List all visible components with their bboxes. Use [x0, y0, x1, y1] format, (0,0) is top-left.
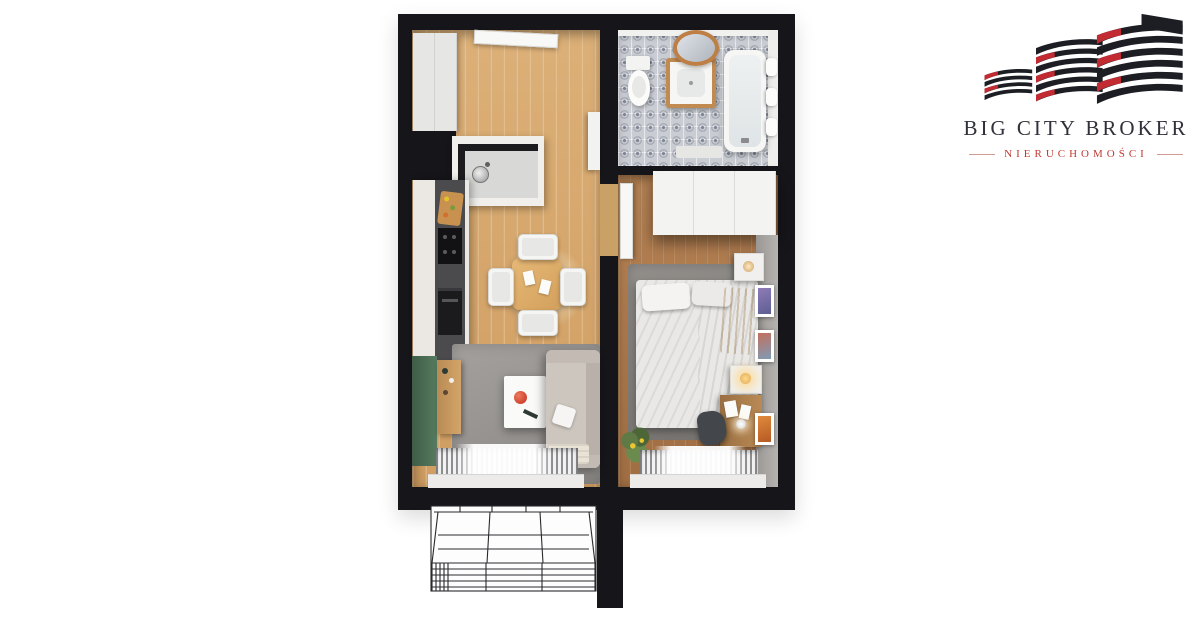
- wall-art-frame: [755, 330, 774, 362]
- tagline-rule-right: [1157, 154, 1183, 155]
- burner: [452, 235, 456, 239]
- kitchen-wall-stub: [398, 131, 456, 180]
- chair-seat: [522, 238, 554, 256]
- bed-pillow: [641, 282, 691, 311]
- table-lamp: [743, 261, 754, 272]
- desk-lamp: [736, 419, 746, 429]
- coffee-table: [504, 376, 546, 428]
- nightstand: [734, 253, 764, 281]
- papers: [724, 400, 739, 418]
- wall-art-frame: [755, 285, 774, 317]
- bathtub-faucet: [741, 138, 749, 143]
- kitchen-countertop: [458, 144, 538, 198]
- dining-chair: [518, 234, 558, 260]
- structural-column: [597, 503, 623, 608]
- remote-control: [523, 409, 538, 419]
- chair-seat: [492, 272, 510, 302]
- toilet-seat: [632, 76, 646, 98]
- kitchen-tall-cabinet: [588, 112, 600, 170]
- bedroom-door: [620, 183, 633, 259]
- wood-sideboard: [437, 360, 461, 434]
- room-hallway-kitchen-living: [412, 30, 600, 487]
- food-item: [450, 205, 456, 211]
- chair-seat: [564, 272, 582, 302]
- bathtub: [724, 50, 766, 152]
- nightstand: [730, 365, 762, 394]
- kitchen-faucet: [485, 162, 490, 167]
- toilet: [626, 56, 650, 70]
- sofa-pillow: [551, 403, 576, 428]
- bedroom-wardrobe: [653, 171, 776, 235]
- oven-handle: [442, 299, 458, 302]
- round-copper-mirror: [673, 30, 719, 66]
- dining-table: [512, 258, 562, 310]
- chair-seat: [522, 314, 554, 332]
- living-sheer-curtain: [456, 444, 552, 478]
- wall-art: [758, 333, 771, 359]
- decor-item: [443, 390, 448, 395]
- broker-logo: BIG CITY BROKER NIERUCHOMOŚCI: [962, 12, 1190, 164]
- bathtub-basin: [729, 55, 761, 147]
- wall-art: [758, 288, 771, 314]
- wall-art-frame: [755, 413, 774, 445]
- sofa-armrest: [546, 350, 600, 363]
- room-bathroom: [618, 30, 778, 166]
- decor-item: [449, 378, 454, 383]
- brand-tagline: NIERUCHOMOŚCI: [1004, 148, 1148, 160]
- papers: [739, 404, 752, 420]
- bath-mat: [676, 146, 722, 158]
- vanity-sink: [670, 62, 712, 104]
- dining-chair: [488, 268, 514, 306]
- bedroom-window-sill: [630, 474, 766, 488]
- dining-chair: [518, 310, 558, 336]
- glowing-table-lamp: [740, 373, 751, 384]
- bedroom-sheer-curtain: [654, 446, 746, 476]
- tagline-rule-left: [969, 154, 995, 155]
- food-item: [443, 212, 449, 218]
- dining-chair: [560, 268, 586, 306]
- red-bowl: [514, 391, 527, 404]
- sink-drain: [689, 81, 693, 85]
- logo-buildings-icon: [962, 12, 1190, 112]
- towel: [766, 118, 777, 136]
- balcony-line-art: [430, 505, 597, 592]
- burner: [443, 235, 447, 239]
- hallway-wardrobe: [413, 33, 457, 131]
- kitchen-sink: [472, 166, 489, 183]
- cutting-board: [437, 191, 464, 227]
- brand-tagline-row: NIERUCHOMOŚCI: [962, 148, 1190, 160]
- real-estate-listing-image: BIG CITY BROKER NIERUCHOMOŚCI: [0, 0, 1200, 626]
- wall-art: [758, 416, 771, 442]
- place-setting: [523, 270, 536, 286]
- room-bedroom: [618, 175, 778, 487]
- burner: [443, 250, 447, 254]
- decor-item: [442, 368, 448, 374]
- green-accent-wall: [412, 356, 437, 466]
- yellow-throw-blanket: [720, 287, 757, 355]
- towel: [766, 88, 777, 106]
- food-item: [444, 196, 450, 202]
- toilet-bowl: [628, 70, 650, 106]
- cooktop: [438, 228, 462, 264]
- brand-name: BIG CITY BROKER: [962, 116, 1190, 141]
- living-window-sill: [428, 474, 584, 488]
- bedroom-doorway: [600, 184, 618, 256]
- towel: [766, 58, 777, 76]
- burner: [452, 250, 456, 254]
- entry-door: [474, 30, 559, 48]
- oven: [438, 288, 462, 335]
- place-setting: [538, 279, 551, 295]
